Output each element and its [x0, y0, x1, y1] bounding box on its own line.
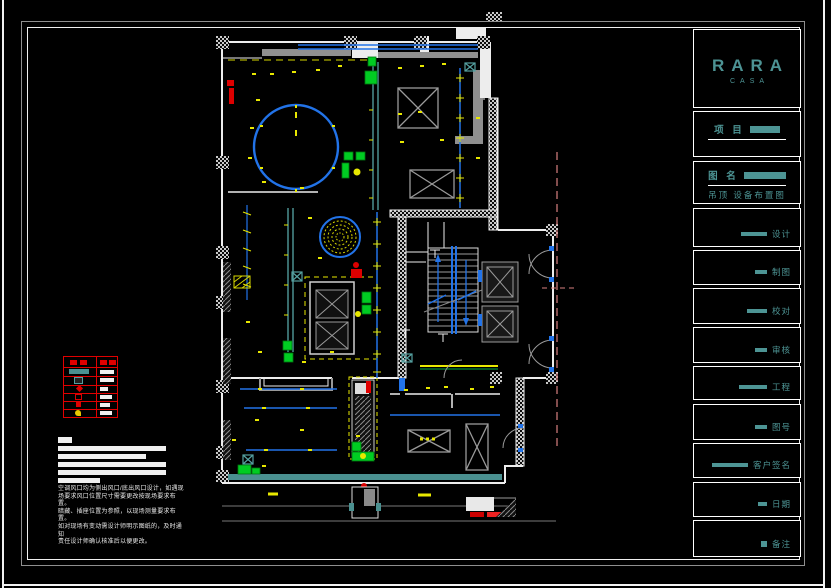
rosette-rings: [324, 221, 356, 253]
ceiling-features: [398, 88, 488, 470]
legend-name-bar: [100, 403, 110, 407]
project-label: 项 目: [714, 122, 745, 136]
legend-header-block: [80, 360, 87, 365]
review-label: 审核: [772, 344, 791, 356]
columns: [216, 12, 558, 482]
brand-logo: RARA: [694, 56, 800, 76]
date-label: 日期: [772, 498, 791, 510]
engineering-label: 工程: [772, 381, 791, 393]
notes-text-line: 空调风口均为侧出风口/底出风口设计，如遇现: [58, 486, 186, 494]
titleblock-row-check: 校对: [693, 288, 801, 324]
legend-table: [63, 356, 118, 418]
legend-symbol-lamp: [75, 410, 81, 416]
teal-band: [228, 474, 502, 480]
core-elevators: [478, 262, 518, 342]
titleblock-row-design: 设计: [693, 208, 801, 247]
legend-symbol-red-box: [75, 394, 82, 400]
client-signature-label: 客户签名: [753, 459, 791, 471]
notes-redacted-line: [58, 454, 146, 459]
legend-name-bar: [100, 411, 112, 415]
titleblock-row-date: 日期: [693, 482, 801, 517]
notes-text-line: 暗藏、插座位置为参照，以现场测量要求布置。: [58, 509, 186, 524]
notes-redacted-line: [58, 446, 166, 451]
drawing-name-text: 吊顶 设备布置图: [694, 189, 800, 201]
notes-text-line: 场要求风口位置尺寸需要更改按现场要求布置。: [58, 494, 186, 509]
drawing-sheet: 空调风口均为侧出风口/底出风口设计，如遇现 场要求风口位置尺寸需要更改按现场要求…: [0, 0, 831, 588]
notes-text-line: 如对现场有变动需设计师明示图纸的，及时通知: [58, 524, 186, 539]
notes-title-bar: [58, 437, 72, 443]
titleblock-row-review: 审核: [693, 327, 801, 363]
drawing-name-label: 图 名: [708, 168, 739, 182]
drawing-name-bar: [744, 172, 786, 179]
legend-symbol-xbox: [74, 377, 83, 384]
titleblock-row-remarks: 备注: [693, 520, 801, 557]
legend-name-bar: [100, 395, 112, 399]
titleblock-row-project-eng: 工程: [693, 366, 801, 400]
legend-header-block: [70, 360, 77, 365]
legend-symbol-red-diamond: [76, 385, 83, 392]
legend-symbol-teal-bar: [69, 369, 89, 374]
drawing-no-label: 图号: [772, 421, 791, 433]
project-value-bar: [750, 126, 780, 133]
titleblock-row-client-signature: 客户签名: [693, 443, 801, 478]
drawing-name-underline: [708, 185, 786, 186]
legend-col-divider: [96, 357, 97, 417]
design-label: 设计: [772, 228, 791, 240]
notes-redacted-line: [58, 470, 166, 475]
remarks-label: 备注: [772, 538, 791, 550]
project-underline: [708, 139, 786, 140]
ceiling-rosette: [320, 217, 360, 257]
service-elevators: [305, 277, 377, 359]
legend-name-bar: [100, 387, 108, 391]
notes-redacted-line: [58, 462, 166, 467]
legend-name-bar: [100, 378, 114, 382]
titleblock-logo-box: RARA CASA: [693, 29, 801, 108]
staircase: [400, 246, 482, 342]
legend-symbol-red-block: [76, 402, 81, 407]
titleblock-row-draft: 制图: [693, 250, 801, 285]
brand-logo-sub: CASA: [694, 78, 800, 85]
notes-block: 空调风口均为侧出风口/底出风口设计，如遇现 场要求风口位置尺寸需要更改按现场要求…: [58, 437, 186, 547]
legend-header-block: [100, 360, 107, 365]
titleblock-drawingname-box: 图 名 吊顶 设备布置图: [693, 161, 801, 204]
titleblock-project-box: 项 目: [693, 111, 801, 157]
check-label: 校对: [772, 305, 791, 317]
legend-header-block: [109, 360, 116, 365]
legend-name-bar: [100, 370, 114, 374]
draft-label: 制图: [772, 266, 791, 278]
notes-redacted-line: [58, 478, 100, 483]
reference-dashed-line: [542, 152, 576, 450]
notes-text-line: 责任设计师确认核准后以便更改。: [58, 539, 186, 547]
titleblock-row-drawingno: 图号: [693, 404, 801, 440]
